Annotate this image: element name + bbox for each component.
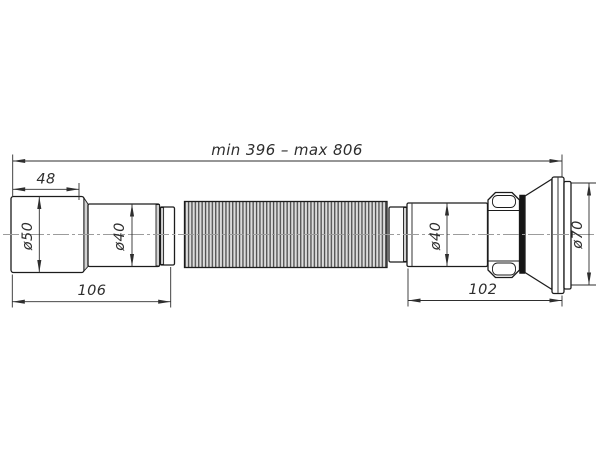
siphon-assembly	[11, 177, 571, 294]
dim-outlet-diameter: ø70	[570, 183, 596, 285]
inlet-pipe-end-shading	[156, 205, 160, 266]
hose-collar-left-shading	[161, 208, 164, 265]
dim-right-length-label: 102	[469, 282, 498, 298]
dim-socket-depth: 48	[13, 172, 79, 201]
dim-left-length-label: 106	[78, 283, 107, 299]
dim-left-pipe-diameter-label: ø40	[112, 222, 128, 252]
dim-overall-label: min 396 – max 806	[211, 141, 363, 159]
technical-drawing: min 396 – max 806 48 ø50 ø40 ø40 ø70 106	[0, 0, 600, 450]
dim-right-pipe-diameter-label: ø40	[428, 222, 444, 252]
dim-inlet-diameter-label: ø50	[20, 222, 36, 252]
dim-socket-depth-label: 48	[36, 172, 55, 188]
dim-overall: min 396 – max 806	[13, 141, 562, 196]
dim-outlet-diameter-label: ø70	[570, 220, 586, 250]
